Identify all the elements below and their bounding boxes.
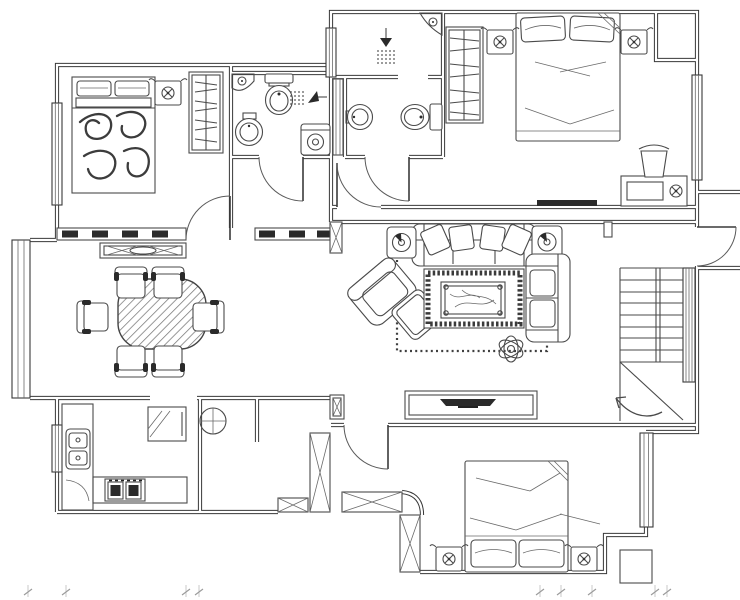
wardrobe-icon <box>446 27 483 123</box>
nightstand-icon <box>481 28 519 54</box>
nightstand-icon <box>149 79 187 105</box>
dimension-ticks <box>24 585 671 597</box>
dining-chair-icon <box>151 346 185 377</box>
entry-door-icon <box>697 227 736 266</box>
side-table-icon <box>387 227 416 258</box>
door-bedroom1-icon <box>186 196 230 240</box>
bathroom-center <box>346 104 442 130</box>
corner-washbasin-icon <box>420 13 442 35</box>
floor-plan-drawing <box>0 0 740 600</box>
hatched-bearing-wall <box>57 228 337 240</box>
living-column-icon <box>330 222 342 253</box>
double-bed-icon <box>72 77 155 193</box>
window-kitchen-icon <box>52 425 62 472</box>
vent-shaft-icon <box>330 395 344 419</box>
door-bedroom3-icon <box>344 425 388 469</box>
window-shower-icon <box>326 28 336 77</box>
washbasin-icon <box>236 113 263 146</box>
sideboard-icon <box>100 243 186 258</box>
pillar-jog <box>604 222 612 237</box>
bay-window-icon <box>12 240 30 398</box>
desk-icon <box>621 176 687 206</box>
washbasin-icon <box>346 105 373 130</box>
nightstand-icon <box>615 28 653 54</box>
dining-chair-icon <box>77 300 108 334</box>
living-room <box>345 224 570 419</box>
shower-head-icon <box>290 91 327 105</box>
nightstand-icon <box>565 545 603 571</box>
steps <box>620 280 683 362</box>
door-bath-left-icon <box>259 157 303 201</box>
door-bath-center-icon <box>365 157 409 201</box>
desk-chair-icon <box>639 145 669 177</box>
window-bedroom3-icon <box>640 433 653 527</box>
side-table-icon <box>532 226 562 258</box>
stair-glazing-icon <box>683 268 695 382</box>
coffee-table-icon <box>441 282 505 318</box>
staircase <box>616 268 683 421</box>
wardrobe-icon <box>189 72 223 153</box>
floor-plan-sheet <box>0 0 740 600</box>
toilet-icon <box>265 74 293 115</box>
bedroom-lower-right <box>430 461 603 572</box>
dining-chair-icon <box>114 267 148 298</box>
pipe-shaft <box>333 79 343 155</box>
bathroom-left <box>232 74 330 155</box>
nightstand-icon <box>430 545 468 571</box>
dining-chair-icon <box>151 267 185 298</box>
window-bedroom2-icon <box>692 75 702 180</box>
shower-head-icon <box>377 28 395 64</box>
tv-cabinet-icon <box>405 391 537 419</box>
refrigerator-icon <box>148 407 186 441</box>
chaise-sofa-icon <box>526 254 570 342</box>
direction-arrow-icon <box>616 397 662 416</box>
stove-icon <box>105 479 145 501</box>
toilet-icon <box>401 104 442 130</box>
shower-room-center <box>377 13 442 64</box>
kitchen-sink-icon <box>66 429 90 469</box>
floor-drain-icon <box>200 408 226 434</box>
wall-tv-icon <box>537 200 597 206</box>
dining-chair-icon <box>193 300 224 334</box>
dining-room <box>77 243 224 377</box>
double-bed-icon <box>516 13 620 141</box>
bedroom-upper-right <box>446 13 687 206</box>
washing-machine-icon <box>301 124 330 155</box>
column-icon <box>278 433 420 572</box>
sofa-icon <box>412 224 536 266</box>
counter-corner <box>66 480 89 501</box>
dining-chair-icon <box>114 346 148 377</box>
window-bedroom1-icon <box>52 103 62 205</box>
plant-icon <box>496 336 526 362</box>
corner-shelf-icon <box>232 74 254 90</box>
exterior-ledge <box>620 550 652 583</box>
bedroom-upper-left <box>72 72 223 193</box>
